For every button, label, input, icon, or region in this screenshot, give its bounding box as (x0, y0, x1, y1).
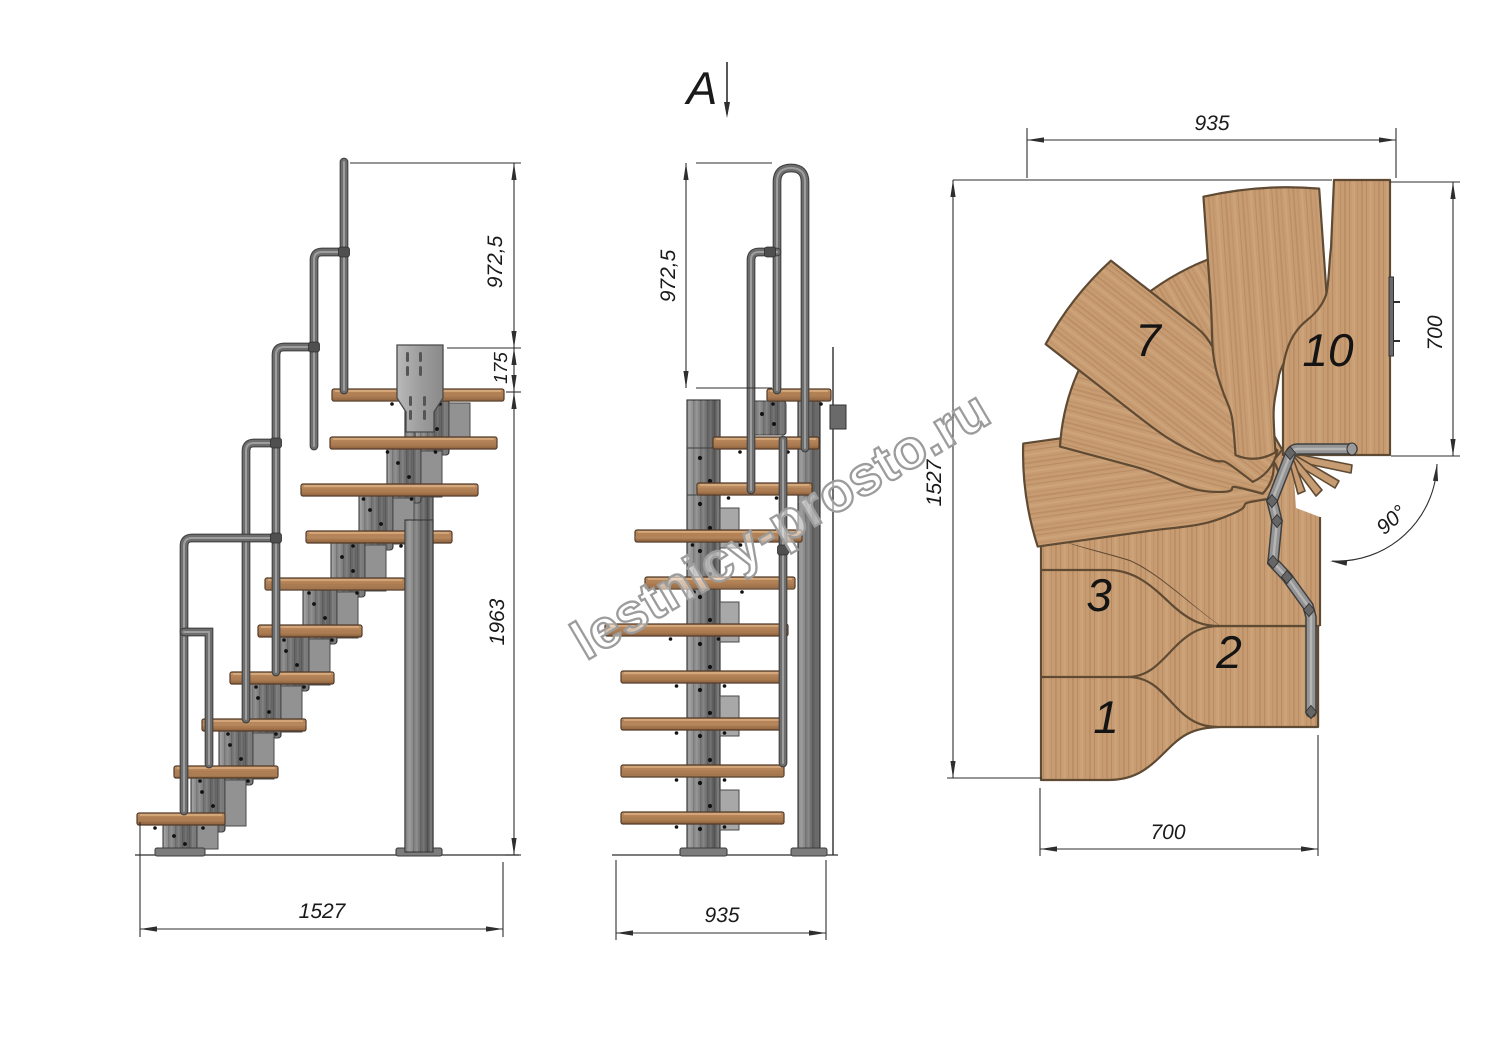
svg-text:A: A (684, 62, 718, 114)
svg-text:2: 2 (1215, 626, 1242, 678)
svg-text:1527: 1527 (299, 900, 347, 923)
svg-text:700: 700 (1150, 821, 1185, 844)
svg-text:972,5: 972,5 (657, 249, 680, 302)
svg-text:1963: 1963 (486, 598, 509, 645)
svg-text:10: 10 (1302, 324, 1354, 376)
svg-text:175: 175 (491, 352, 512, 384)
svg-text:972,5: 972,5 (484, 235, 507, 288)
svg-text:935: 935 (1194, 112, 1229, 135)
svg-text:1: 1 (1093, 691, 1119, 743)
svg-text:3: 3 (1086, 569, 1112, 621)
svg-text:935: 935 (704, 904, 739, 927)
svg-text:700: 700 (1424, 315, 1447, 350)
svg-text:7: 7 (1135, 314, 1162, 366)
